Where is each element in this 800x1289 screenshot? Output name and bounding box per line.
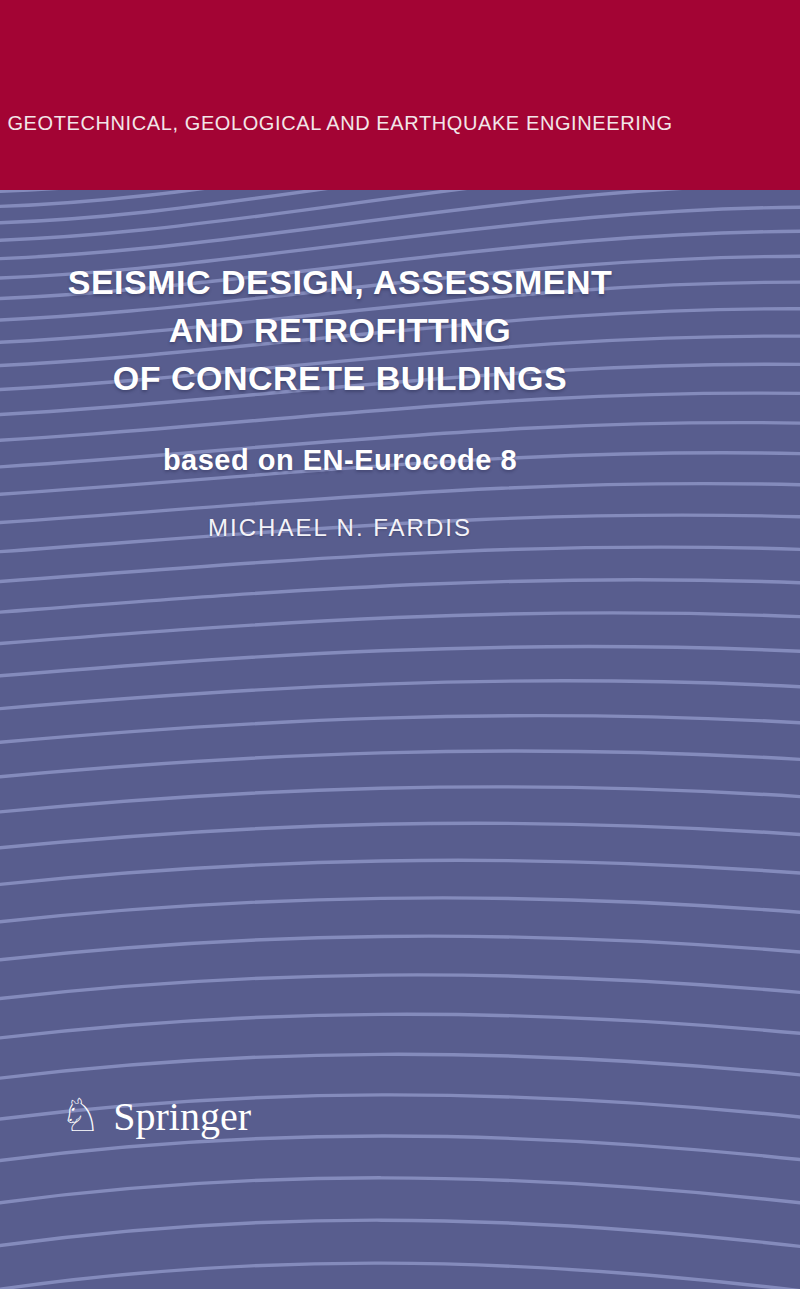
- book-title: SEISMIC DESIGN, ASSESSMENT AND RETROFITT…: [0, 258, 680, 402]
- series-banner: GEOTECHNICAL, GEOLOGICAL AND EARTHQUAKE …: [0, 0, 800, 190]
- publisher-logo: ♘ Springer: [60, 1092, 251, 1138]
- book-title-line: AND RETROFITTING: [0, 306, 680, 354]
- book-cover: GEOTECHNICAL, GEOLOGICAL AND EARTHQUAKE …: [0, 0, 800, 1289]
- book-title-line: SEISMIC DESIGN, ASSESSMENT: [0, 258, 680, 306]
- horse-knight-glyph: ♘: [60, 1092, 101, 1138]
- book-title-line: OF CONCRETE BUILDINGS: [0, 354, 680, 402]
- book-subtitle: based on EN-Eurocode 8: [0, 444, 680, 477]
- publisher-wordmark: Springer: [113, 1096, 251, 1138]
- springer-horse-icon: ♘: [60, 1092, 101, 1138]
- author-name: MICHAEL N. FARDIS: [0, 514, 680, 542]
- series-title: GEOTECHNICAL, GEOLOGICAL AND EARTHQUAKE …: [0, 112, 680, 135]
